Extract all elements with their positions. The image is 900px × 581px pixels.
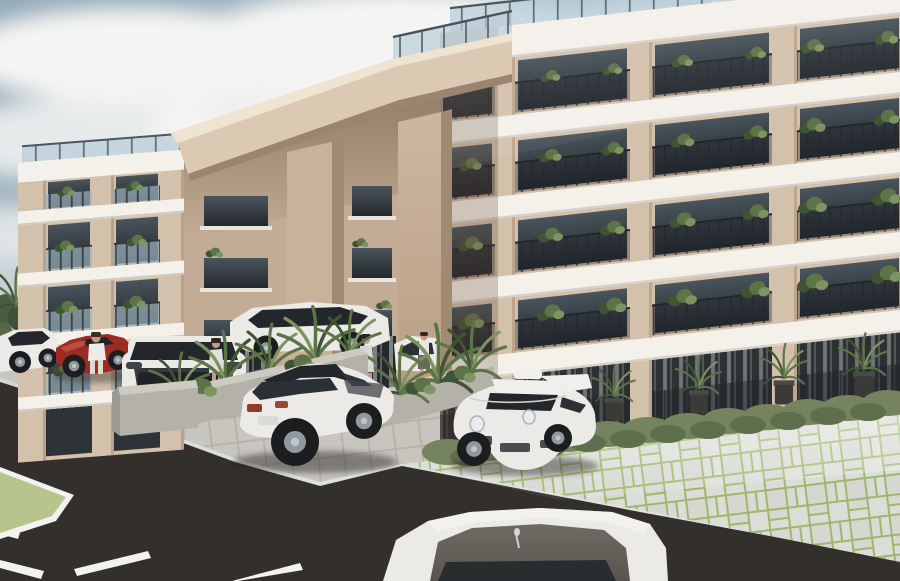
tail-light — [247, 404, 262, 412]
headlight — [470, 416, 484, 432]
license-plate — [258, 416, 278, 425]
scene-canvas — [0, 0, 900, 581]
rendering-viewport — [0, 0, 900, 581]
roof-scoop — [514, 370, 542, 379]
windshield — [438, 560, 616, 581]
tail-light — [275, 401, 288, 408]
parking-corner-planter — [112, 380, 198, 436]
car-white-sports-far-left — [0, 328, 58, 373]
headlight — [523, 410, 535, 424]
